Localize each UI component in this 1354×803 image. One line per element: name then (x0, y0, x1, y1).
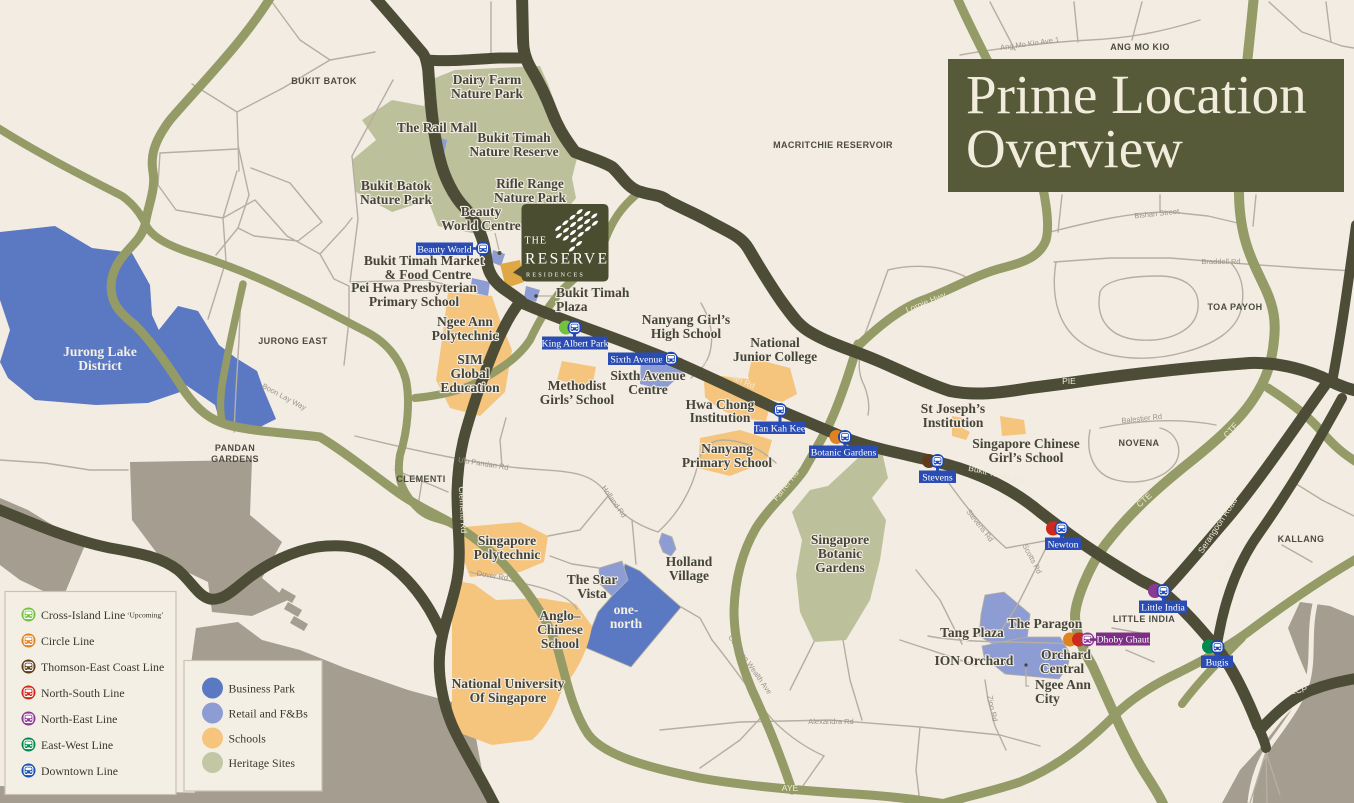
svg-text:‘Upcoming’: ‘Upcoming’ (127, 611, 164, 620)
svg-text:Schools: Schools (229, 731, 267, 745)
svg-text:TOA PAYOH: TOA PAYOH (1207, 302, 1262, 312)
svg-text:Cross-Island Line: Cross-Island Line (41, 608, 125, 622)
svg-text:Girls’ School: Girls’ School (540, 392, 615, 407)
svg-text:MACRITCHIE RESERVOIR: MACRITCHIE RESERVOIR (773, 140, 893, 150)
svg-text:Polytechnic: Polytechnic (474, 547, 541, 562)
svg-text:Education: Education (440, 380, 500, 395)
svg-text:PIE: PIE (1062, 376, 1076, 386)
svg-text:Gardens: Gardens (815, 560, 865, 575)
svg-text:The Rail Mall: The Rail Mall (397, 120, 477, 135)
svg-text:Girl’s School: Girl’s School (989, 450, 1064, 465)
svg-text:RESERVE: RESERVE (525, 251, 609, 268)
svg-text:Bukit Batok: Bukit Batok (361, 178, 432, 193)
svg-text:Primary School: Primary School (682, 455, 773, 470)
svg-text:Sixth Avenue: Sixth Avenue (610, 368, 685, 383)
svg-text:Methodist: Methodist (548, 378, 607, 393)
svg-text:Nanyang: Nanyang (701, 441, 753, 456)
svg-text:King Albert Park: King Albert Park (542, 339, 609, 350)
svg-text:Beauty World: Beauty World (417, 244, 471, 255)
svg-text:The Star: The Star (567, 572, 618, 587)
svg-text:Tan Kah Kee: Tan Kah Kee (754, 423, 806, 434)
svg-text:Newton: Newton (1047, 539, 1078, 550)
svg-text:Retail and F&Bs: Retail and F&Bs (229, 706, 309, 720)
svg-text:Thomson-East Coast Line: Thomson-East Coast Line (41, 660, 164, 674)
svg-text:Dairy Farm: Dairy Farm (453, 72, 522, 87)
svg-text:North-South Line: North-South Line (41, 686, 125, 700)
svg-text:Nanyang Girl’s: Nanyang Girl’s (642, 312, 730, 327)
svg-text:High School: High School (651, 326, 721, 341)
svg-text:Ngee Ann: Ngee Ann (1035, 677, 1091, 692)
svg-text:BUKIT BATOK: BUKIT BATOK (291, 76, 357, 86)
svg-text:Jurong Lake: Jurong Lake (63, 344, 137, 359)
svg-text:THE: THE (525, 236, 547, 247)
svg-text:Circle Line: Circle Line (41, 634, 94, 648)
svg-text:Bugis: Bugis (1206, 657, 1229, 668)
svg-text:Nature Park: Nature Park (360, 192, 433, 207)
svg-text:Of Singapore: Of Singapore (470, 690, 547, 705)
svg-text:Central: Central (1040, 661, 1084, 676)
svg-text:Rifle Range: Rifle Range (496, 176, 564, 191)
svg-text:Institution: Institution (690, 410, 751, 425)
svg-text:RESIDENCES: RESIDENCES (526, 272, 585, 279)
svg-text:KALLANG: KALLANG (1278, 534, 1325, 544)
svg-text:School: School (541, 636, 580, 651)
svg-text:one-: one- (614, 602, 639, 617)
svg-text:Botanic: Botanic (818, 546, 862, 561)
svg-text:National: National (750, 335, 800, 350)
svg-text:Dhoby Ghaut: Dhoby Ghaut (1096, 635, 1149, 646)
svg-text:World Centre: World Centre (441, 218, 521, 233)
svg-text:District: District (78, 358, 122, 373)
svg-text:Stevens: Stevens (922, 472, 953, 483)
svg-text:Centre: Centre (628, 382, 668, 397)
svg-text:ION Orchard: ION Orchard (935, 653, 1014, 668)
svg-text:north: north (610, 616, 643, 631)
svg-text:Vista: Vista (577, 586, 607, 601)
svg-text:East-West Line: East-West Line (41, 738, 113, 752)
svg-text:Holland: Holland (666, 554, 713, 569)
svg-text:Nature Park: Nature Park (494, 190, 567, 205)
svg-text:Beauty: Beauty (461, 204, 502, 219)
svg-text:Polytechnic: Polytechnic (432, 328, 499, 343)
svg-text:Alexandra Rd: Alexandra Rd (808, 717, 853, 726)
svg-text:Botanic Gardens: Botanic Gardens (811, 447, 877, 458)
svg-text:Overview: Overview (966, 118, 1183, 179)
svg-text:Little India: Little India (1141, 602, 1185, 613)
svg-text:Institution: Institution (923, 415, 984, 430)
svg-text:Anglo–: Anglo– (539, 608, 581, 623)
svg-text:Singapore: Singapore (811, 532, 869, 547)
svg-text:Nature Reserve: Nature Reserve (469, 144, 558, 159)
svg-text:PANDAN: PANDAN (215, 443, 255, 453)
svg-text:Junior College: Junior College (733, 349, 817, 364)
svg-text:CLEMENTI: CLEMENTI (396, 474, 445, 484)
svg-text:Bukit Timah: Bukit Timah (556, 285, 630, 300)
svg-text:Pei Hwa Presbyterian: Pei Hwa Presbyterian (351, 280, 477, 295)
svg-text:City: City (1035, 691, 1060, 706)
svg-text:Orchard: Orchard (1041, 647, 1091, 662)
svg-text:Heritage Sites: Heritage Sites (229, 756, 296, 770)
svg-text:Chinese: Chinese (537, 622, 583, 637)
svg-text:Global: Global (450, 366, 489, 381)
svg-text:The Paragon: The Paragon (1008, 616, 1083, 631)
svg-text:GARDENS: GARDENS (211, 454, 259, 464)
svg-text:Singapore Chinese: Singapore Chinese (972, 436, 1079, 451)
svg-text:Plaza: Plaza (556, 299, 588, 314)
svg-text:Ngee Ann: Ngee Ann (437, 314, 493, 329)
svg-text:Business Park: Business Park (229, 681, 296, 695)
svg-text:Nature Park: Nature Park (451, 86, 524, 101)
svg-text:Village: Village (669, 568, 709, 583)
svg-text:Sixth Avenue: Sixth Avenue (610, 354, 663, 365)
svg-text:SIM: SIM (457, 352, 483, 367)
svg-text:North-East Line: North-East Line (41, 712, 117, 726)
svg-text:NOVENA: NOVENA (1119, 438, 1160, 448)
svg-text:AYE: AYE (782, 783, 799, 793)
svg-text:Bukit Timah: Bukit Timah (477, 130, 551, 145)
svg-text:St Joseph’s: St Joseph’s (921, 401, 985, 416)
svg-text:Prime Location: Prime Location (966, 64, 1307, 125)
svg-text:ANG MO KIO: ANG MO KIO (1110, 42, 1170, 52)
svg-text:LITTLE INDIA: LITTLE INDIA (1113, 614, 1175, 624)
svg-text:Downtown Line: Downtown Line (41, 764, 118, 778)
svg-text:JURONG EAST: JURONG EAST (258, 336, 328, 346)
svg-text:Braddell Rd: Braddell Rd (1201, 257, 1240, 266)
svg-text:National University: National University (452, 676, 565, 691)
svg-text:Primary School: Primary School (369, 294, 460, 309)
svg-text:Singapore: Singapore (478, 533, 536, 548)
svg-text:Tang Plaza: Tang Plaza (940, 625, 1004, 640)
